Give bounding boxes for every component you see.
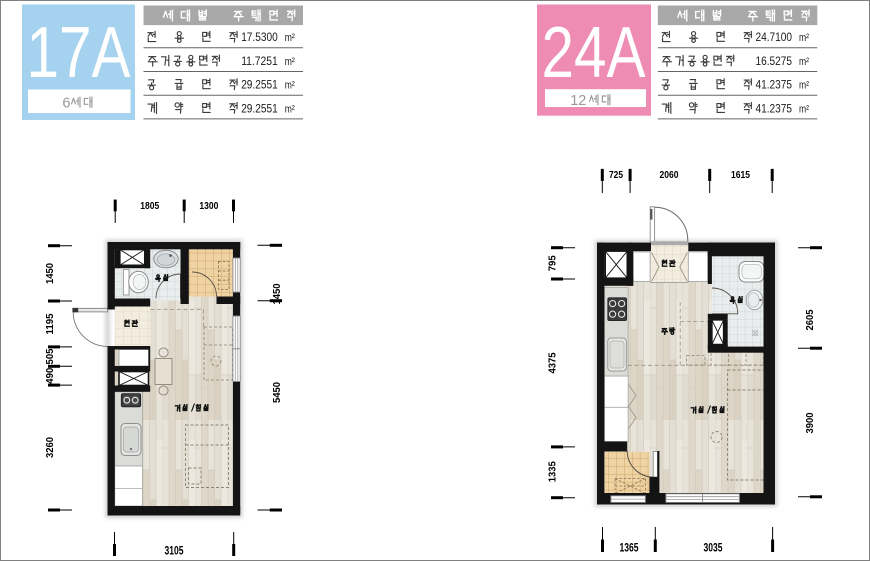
svg-text:3900: 3900 — [804, 412, 816, 433]
svg-text:m²: m² — [285, 103, 295, 115]
svg-text:725: 725 — [609, 169, 623, 181]
svg-text:m²: m² — [285, 32, 295, 44]
svg-text:1805: 1805 — [140, 200, 159, 212]
svg-text:m²: m² — [285, 80, 295, 92]
svg-text:795: 795 — [547, 255, 559, 271]
svg-text:1300: 1300 — [199, 200, 218, 212]
svg-text:16.5275: 16.5275 — [756, 56, 793, 68]
svg-text:17A: 17A — [27, 13, 131, 93]
svg-text:490: 490 — [44, 368, 56, 384]
svg-text:29.2551: 29.2551 — [241, 103, 278, 115]
svg-text:1615: 1615 — [731, 169, 750, 181]
svg-text:11.7251: 11.7251 — [241, 56, 278, 68]
svg-text:24A: 24A — [542, 13, 646, 93]
svg-text:41.2375: 41.2375 — [756, 80, 793, 92]
svg-text:1335: 1335 — [547, 461, 559, 482]
svg-text:24.7100: 24.7100 — [756, 32, 793, 44]
svg-text:12: 12 — [570, 93, 586, 109]
svg-text:m²: m² — [799, 80, 809, 92]
svg-text:m²: m² — [799, 32, 809, 44]
svg-text:m²: m² — [799, 103, 809, 115]
svg-text:29.2551: 29.2551 — [241, 80, 278, 92]
svg-text:505: 505 — [44, 348, 56, 364]
svg-text:2605: 2605 — [804, 309, 816, 330]
svg-text:41.2375: 41.2375 — [756, 103, 793, 115]
svg-text:1365: 1365 — [620, 543, 639, 555]
svg-text:2060: 2060 — [660, 169, 679, 181]
svg-text:1195: 1195 — [44, 313, 56, 334]
svg-text:4375: 4375 — [547, 352, 559, 373]
svg-text:1450: 1450 — [271, 283, 283, 304]
svg-text:6: 6 — [62, 95, 70, 111]
svg-text:m²: m² — [799, 56, 809, 68]
svg-text:m²: m² — [285, 56, 295, 68]
svg-text:3260: 3260 — [44, 437, 56, 458]
svg-text:3035: 3035 — [704, 543, 723, 555]
svg-text:1450: 1450 — [44, 263, 56, 284]
svg-text:5450: 5450 — [271, 382, 283, 403]
svg-text:17.5300: 17.5300 — [241, 32, 278, 44]
svg-text:3105: 3105 — [165, 546, 184, 558]
